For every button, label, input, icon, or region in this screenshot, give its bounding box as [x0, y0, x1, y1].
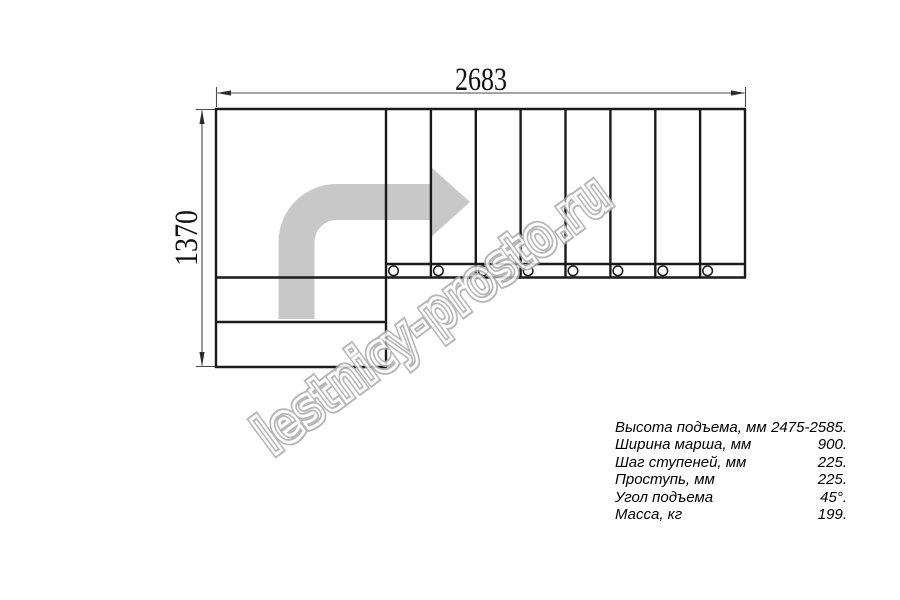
spec-value: 225.: [818, 454, 847, 471]
spec-label: Ширина марша, мм: [615, 436, 751, 453]
spec-value: 199.: [818, 506, 847, 523]
spec-row: Ширина марша, мм 900.: [615, 436, 847, 453]
top-dim-arrow-right-icon: [731, 90, 745, 95]
spec-value: 225.: [818, 471, 847, 488]
spec-label: Высота подъема, мм: [615, 419, 767, 436]
top-dim-arrow-left-icon: [217, 90, 231, 95]
left-dim-label: 1370: [169, 210, 205, 266]
spec-value: 900.: [818, 436, 847, 453]
top-dim-label: 2683: [455, 62, 507, 98]
spec-label: Шаг ступеней, мм: [615, 454, 746, 471]
spec-value: 45°.: [820, 489, 847, 506]
spec-table: Высота подъема, мм 2475-2585. Ширина мар…: [615, 419, 847, 523]
spec-value: 2475-2585.: [771, 419, 847, 436]
left-dim-arrow-bottom-icon: [199, 352, 204, 366]
spec-row: Проступь, мм 225.: [615, 471, 847, 488]
left-dim-arrow-top-icon: [199, 110, 204, 124]
spec-row: Шаг ступеней, мм 225.: [615, 454, 847, 471]
direction-arrow-shaft: [297, 202, 432, 319]
direction-arrow: [297, 167, 471, 319]
spec-row: Масса, кг 199.: [615, 506, 847, 523]
bolt-hole: [434, 266, 444, 276]
bolt-hole: [658, 266, 668, 276]
bolt-hole: [613, 266, 623, 276]
bolt-holes: [389, 266, 713, 276]
spec-label: Проступь, мм: [615, 471, 715, 488]
spec-label: Масса, кг: [615, 506, 682, 523]
bolt-hole: [523, 266, 533, 276]
bolt-hole: [568, 266, 578, 276]
bolt-hole: [479, 266, 489, 276]
bolt-hole: [703, 266, 713, 276]
tread-dividers: [431, 109, 700, 278]
spec-label: Угол подъема: [615, 489, 713, 506]
direction-arrow-head-icon: [431, 167, 470, 237]
spec-row: Высота подъема, мм 2475-2585.: [615, 419, 847, 436]
spec-row: Угол подъема 45°.: [615, 489, 847, 506]
stair-drawing-page: { "page": { "background": "#ffffff" }, "…: [0, 0, 900, 600]
bolt-hole: [389, 266, 399, 276]
